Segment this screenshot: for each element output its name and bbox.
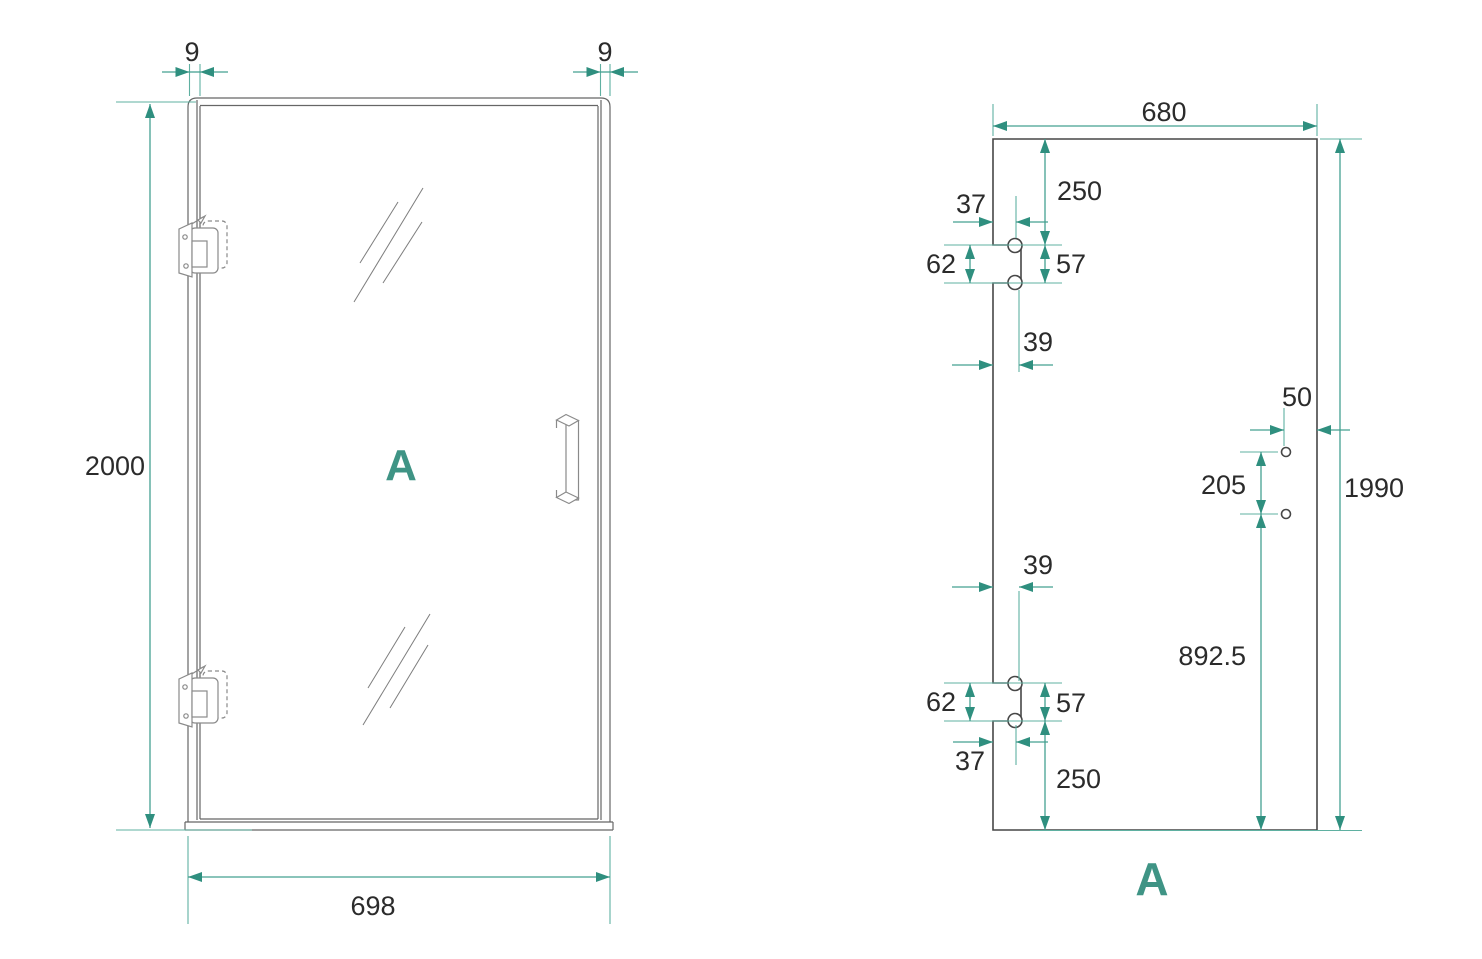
dim-glass-width: 680 [993, 97, 1317, 136]
door-handle [557, 415, 579, 504]
dim-door-height-value: 2000 [85, 451, 145, 481]
dim-glass-height-value: 1990 [1344, 473, 1404, 503]
dim-top-offset-value: 250 [1057, 176, 1102, 206]
dim-door-width: 698 [188, 836, 610, 924]
dim-top-cutout-height-value: 62 [926, 249, 956, 279]
diagram-canvas: 9 9 2000 698 A [0, 0, 1482, 959]
dim-handle-to-bottom-value: 892.5 [1178, 641, 1246, 671]
door-bottom-rail [185, 819, 613, 830]
glass-panel-outline [993, 139, 1317, 830]
dim-top-inset-value: 37 [956, 189, 986, 219]
dim-profile-left-value: 9 [184, 37, 199, 67]
technical-drawing-page: 9 9 2000 698 A [0, 0, 1482, 959]
dim-door-height: 2000 [85, 102, 252, 830]
door-hinge-top [179, 216, 227, 277]
glass-view: 680 1990 250 37 62 57 [926, 97, 1404, 905]
dim-bottom-offset-value: 250 [1056, 764, 1101, 794]
dim-profile-right-value: 9 [597, 37, 612, 67]
dim-door-width-value: 698 [350, 891, 395, 921]
dim-handle-hole-spacing-value: 205 [1201, 470, 1246, 500]
dim-bottom-hole-spacing-value: 57 [1056, 688, 1086, 718]
dim-handle-hole-edge-value: 50 [1282, 382, 1312, 412]
dim-bottom-cutout-height-value: 62 [926, 687, 956, 717]
front-view-label: A [385, 441, 417, 490]
dim-profile-right: 9 [573, 37, 638, 96]
front-view: 9 9 2000 698 A [85, 37, 638, 924]
dim-profile-left: 9 [162, 37, 228, 96]
dim-glass-width-value: 680 [1141, 97, 1186, 127]
glass-view-label: A [1135, 853, 1168, 905]
dim-bottom-inset-value: 37 [955, 746, 985, 776]
door-hinge-bottom [179, 666, 227, 727]
dim-top-cutout-width-value: 39 [1023, 327, 1053, 357]
dim-top-hole-spacing-value: 57 [1056, 249, 1086, 279]
dim-bottom-cutout-width-value: 39 [1023, 550, 1053, 580]
